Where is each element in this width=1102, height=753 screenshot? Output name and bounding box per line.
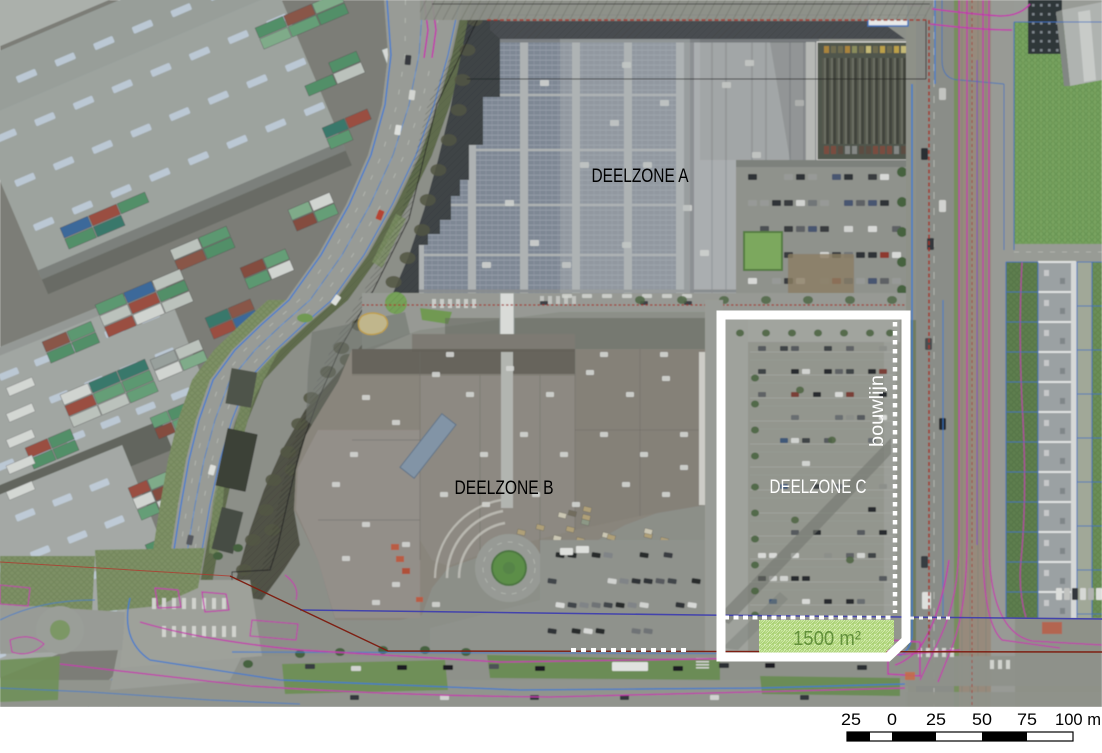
svg-text:bouwlijn: bouwlijn (867, 375, 888, 447)
svg-text:0: 0 (887, 710, 897, 729)
svg-text:DEELZONE B: DEELZONE B (455, 478, 554, 499)
svg-text:50: 50 (972, 710, 992, 729)
svg-text:25: 25 (841, 710, 861, 729)
svg-text:75: 75 (1017, 710, 1037, 729)
svg-text:DEELZONE A: DEELZONE A (592, 166, 689, 187)
svg-text:1500 m²: 1500 m² (793, 628, 861, 650)
svg-text:DEELZONE C: DEELZONE C (770, 477, 867, 498)
svg-text:25: 25 (926, 710, 946, 729)
svg-text:100 m: 100 m (1055, 710, 1101, 729)
